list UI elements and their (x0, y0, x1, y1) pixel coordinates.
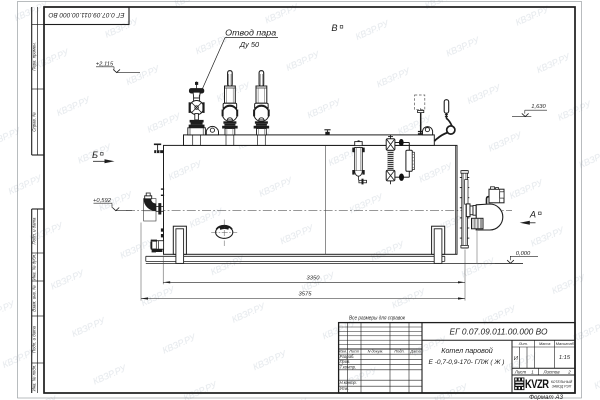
svg-text:Справ. №: Справ. № (31, 112, 36, 132)
svg-text:Подп. и дата: Подп. и дата (31, 325, 36, 353)
svg-text:Листов: Листов (543, 369, 561, 374)
svg-text:Масштаб: Масштаб (556, 342, 575, 346)
svg-text:Е -0,7-0,9-170- ГЛЖ ( Ж ): Е -0,7-0,9-170- ГЛЖ ( Ж ) (429, 359, 505, 366)
svg-text:Перв. примен.: Перв. примен. (31, 42, 36, 71)
svg-text:Подп.: Подп. (394, 349, 404, 354)
svg-text:В: В (331, 23, 337, 33)
svg-text:Все размеры для справок: Все размеры для справок (349, 316, 405, 322)
svg-text:Утв.: Утв. (340, 386, 349, 391)
svg-text:ЕГ 0.07.09.011.00.000 ВО: ЕГ 0.07.09.011.00.000 ВО (48, 11, 124, 18)
svg-text:КОТЕЛЬНЫЙ: КОТЕЛЬНЫЙ (551, 380, 573, 384)
svg-text:Подп. и дата: Подп. и дата (31, 217, 36, 245)
svg-text:+2,115: +2,115 (96, 61, 114, 67)
svg-text:Лит.: Лит. (518, 341, 528, 346)
svg-text:ЗАВОД РЭП: ЗАВОД РЭП (552, 385, 572, 389)
svg-text:Отвод пара: Отвод пара (225, 28, 277, 37)
svg-text:Масса: Масса (539, 341, 551, 346)
svg-text:Н.контр.: Н.контр. (340, 380, 357, 385)
svg-text:3575: 3575 (299, 292, 313, 298)
svg-text:1:15: 1:15 (559, 355, 571, 361)
svg-text:Т.контр.: Т.контр. (340, 364, 357, 369)
svg-text:N докум.: N докум. (368, 349, 384, 354)
svg-text:2: 2 (567, 369, 571, 374)
svg-text:Ду 50: Ду 50 (239, 40, 260, 49)
svg-text:Дата: Дата (409, 349, 421, 354)
svg-text:Формат А3: Формат А3 (529, 394, 563, 400)
svg-text:1,630: 1,630 (531, 104, 546, 110)
svg-text:Инв. № дубл.: Инв. № дубл. (31, 254, 36, 280)
svg-text:Б: Б (92, 150, 98, 160)
svg-text:3350: 3350 (307, 276, 321, 282)
svg-text:Взам. инв. №: Взам. инв. № (31, 285, 36, 312)
svg-text:KVZR: KVZR (525, 377, 549, 391)
svg-text:Инв. № подл.: Инв. № подл. (31, 365, 36, 392)
svg-text:ЕГ 0.07.09.011.00.000 ВО: ЕГ 0.07.09.011.00.000 ВО (450, 327, 548, 337)
svg-text:А: А (529, 210, 536, 220)
svg-text:Лист: Лист (514, 369, 527, 374)
svg-text:Котел паровой: Котел паровой (441, 346, 493, 355)
